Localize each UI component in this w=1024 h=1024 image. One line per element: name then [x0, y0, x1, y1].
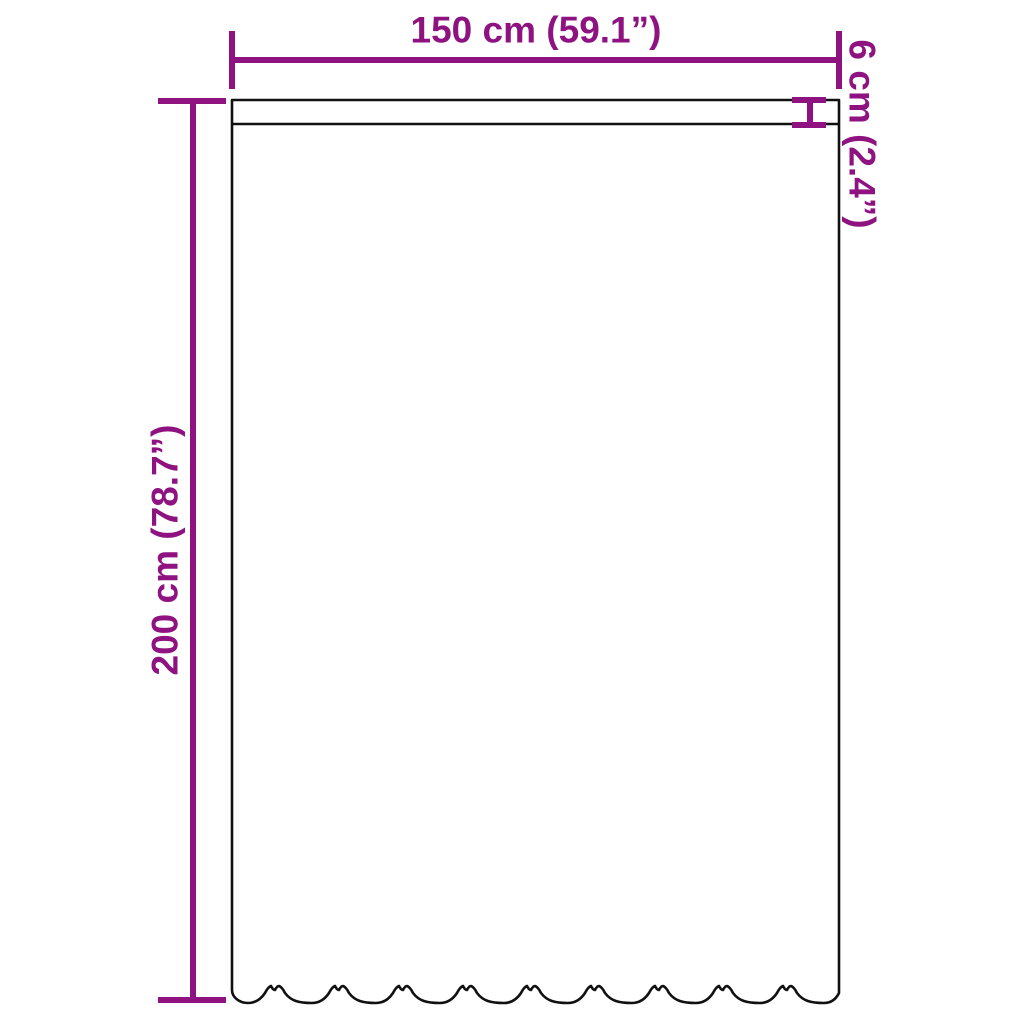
- curtain-dimension-diagram: 150 cm (59.1”) 200 cm (78.7”) 6 cm (2.4”…: [0, 0, 1024, 1024]
- pocket-dimension-connector: [807, 100, 813, 125]
- height-dimension-label: 200 cm (78.7”): [147, 425, 184, 676]
- height-dimension-line: [190, 101, 196, 1000]
- curtain-outline: [232, 100, 839, 1003]
- pocket-dimension-label: 6 cm (2.4”): [844, 39, 881, 228]
- width-dimension-label: 150 cm (59.1”): [411, 12, 662, 49]
- height-dimension-tick-bottom: [158, 997, 226, 1003]
- width-dimension-line: [232, 57, 838, 63]
- width-dimension-tick-left: [229, 31, 235, 89]
- height-dimension-tick-top: [158, 98, 226, 104]
